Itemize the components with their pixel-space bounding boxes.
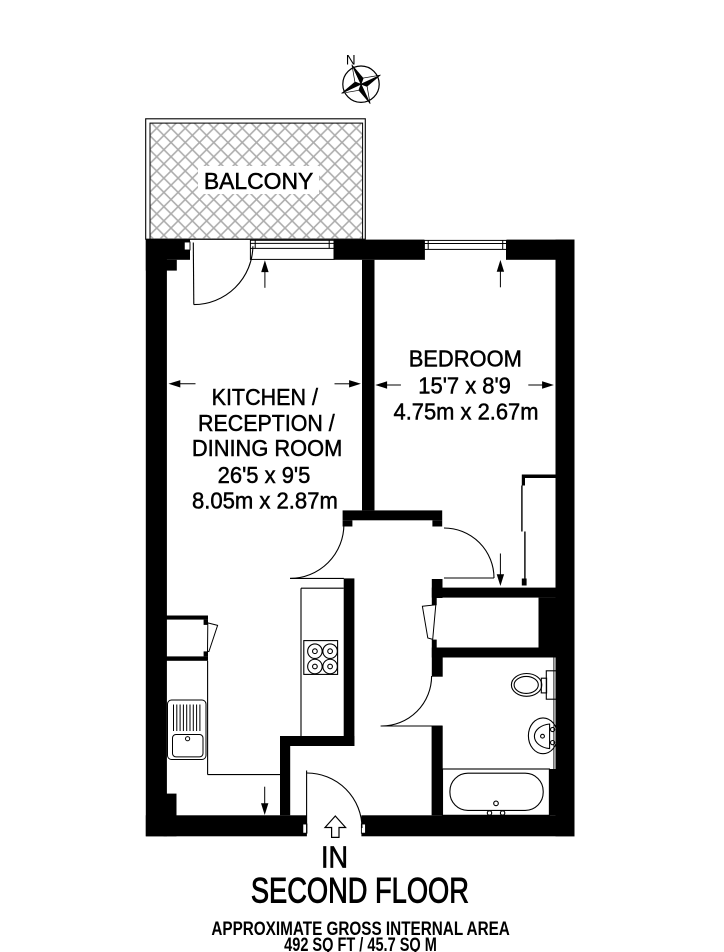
svg-text:N: N xyxy=(346,53,356,68)
svg-text:492 SQ FT / 45.7 SQ M: 492 SQ FT / 45.7 SQ M xyxy=(284,935,437,952)
svg-text:15'7 x 8'9: 15'7 x 8'9 xyxy=(418,372,511,398)
svg-text:DINING ROOM: DINING ROOM xyxy=(192,435,342,461)
svg-text:SECOND FLOOR: SECOND FLOOR xyxy=(251,871,469,910)
svg-text:BALCONY: BALCONY xyxy=(204,168,314,194)
svg-text:8.05m x 2.87m: 8.05m x 2.87m xyxy=(192,487,338,513)
svg-text:IN: IN xyxy=(321,839,348,874)
svg-text:4.75m x 2.67m: 4.75m x 2.67m xyxy=(394,399,539,425)
svg-text:26'5 x 9'5: 26'5 x 9'5 xyxy=(218,462,311,488)
svg-text:KITCHEN /: KITCHEN / xyxy=(212,384,319,410)
svg-text:RECEPTION /: RECEPTION / xyxy=(198,410,335,436)
svg-text:BEDROOM: BEDROOM xyxy=(409,346,522,372)
